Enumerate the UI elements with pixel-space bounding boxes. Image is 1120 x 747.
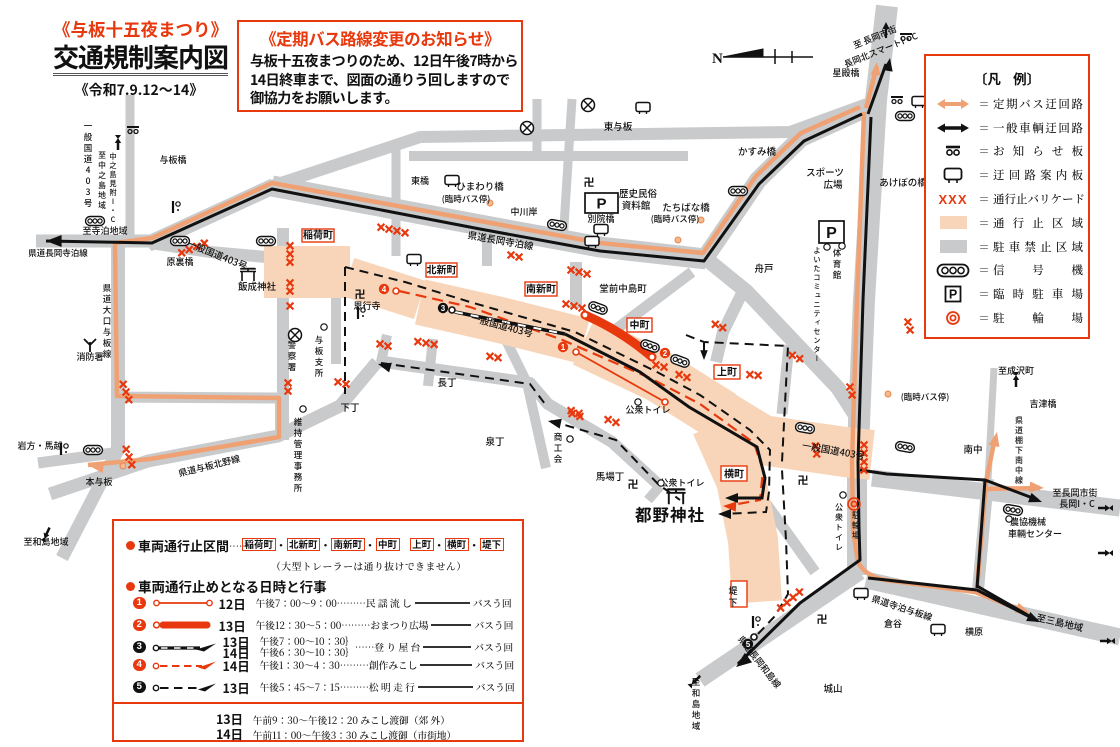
svg-text:(臨時バス停): (臨時バス停) <box>901 391 950 403</box>
svg-text:P: P <box>596 195 606 212</box>
svg-text:維持管理事務所: 維持管理事務所 <box>292 416 304 493</box>
svg-text:与板支所: 与板支所 <box>313 334 325 378</box>
svg-text:下丁: 下丁 <box>340 400 359 414</box>
svg-text:至寺泊地域: 至寺泊地域 <box>82 224 127 237</box>
svg-text:たちばな橋: たちばな橋 <box>662 200 710 214</box>
svg-text:舟戸: 舟戸 <box>754 261 773 275</box>
svg-text:本与板: 本与板 <box>85 475 112 488</box>
svg-text:南新町: 南新町 <box>526 281 556 296</box>
svg-text:中川岸: 中川岸 <box>510 205 537 218</box>
svg-text:4: 4 <box>382 285 387 294</box>
svg-text:警察署: 警察署 <box>286 339 298 372</box>
svg-text:長岡I・C: 長岡I・C <box>1059 497 1095 510</box>
svg-text:至成沢町: 至成沢町 <box>998 364 1034 377</box>
svg-text:横原: 横原 <box>965 625 983 638</box>
svg-text:2: 2 <box>663 349 668 358</box>
svg-text:体育館: 体育館 <box>831 247 843 280</box>
svg-text:泉丁: 泉丁 <box>485 434 504 448</box>
svg-text:P: P <box>826 225 837 242</box>
svg-text:あけぼの橋: あけぼの橋 <box>879 175 927 189</box>
svg-text:至和島地域: 至和島地域 <box>23 535 68 548</box>
svg-text:商工会: 商工会 <box>552 431 564 464</box>
svg-text:5: 5 <box>746 640 751 649</box>
svg-text:中町: 中町 <box>630 317 650 332</box>
svg-text:都野神社: 都野神社 <box>635 502 705 526</box>
svg-text:中之島見附I・C: 中之島見附I・C <box>108 152 118 224</box>
svg-text:(臨時バス停): (臨時バス停) <box>651 213 700 225</box>
svg-text:公衆トイレ: 公衆トイレ <box>625 403 670 416</box>
svg-text:横町: 横町 <box>724 466 744 481</box>
svg-text:(臨時バス停): (臨時バス停) <box>442 193 491 205</box>
svg-text:県道棚下南中線: 県道棚下南中線 <box>1014 415 1025 485</box>
svg-text:よいたコミュニティセンター: よいたコミュニティセンター <box>812 246 822 363</box>
svg-text:1: 1 <box>561 343 566 352</box>
svg-text:N: N <box>712 51 723 67</box>
svg-text:馬場丁: 馬場丁 <box>596 469 625 483</box>
svg-text:公衆トイレ: 公衆トイレ <box>659 476 704 489</box>
svg-text:ひまわり橋: ひまわり橋 <box>456 179 504 193</box>
svg-text:卍: 卍 <box>584 174 595 190</box>
svg-text:車輛センター: 車輛センター <box>1008 527 1062 540</box>
svg-text:飯成神社: 飯成神社 <box>238 279 277 293</box>
svg-text:公衆トイレ: 公衆トイレ <box>834 502 845 552</box>
svg-text:原裏橋: 原裏橋 <box>166 255 193 268</box>
svg-text:稲荷町: 稲荷町 <box>303 227 333 242</box>
svg-text:東橋: 東橋 <box>411 174 429 187</box>
svg-text:至和島地域: 至和島地域 <box>690 676 702 731</box>
svg-text:吉津橋: 吉津橋 <box>1029 397 1056 410</box>
svg-text:岩方・馬越: 岩方・馬越 <box>17 439 62 452</box>
svg-text:卍: 卍 <box>817 611 828 627</box>
svg-text:長丁: 長丁 <box>437 375 456 389</box>
svg-text:県道大口与板線: 県道大口与板線 <box>101 282 113 359</box>
svg-text:堂前中島町: 堂前中島町 <box>599 281 647 295</box>
svg-text:至中之島地域: 至中之島地域 <box>97 150 108 210</box>
svg-text:別院橋: 別院橋 <box>587 212 614 225</box>
svg-text:3: 3 <box>441 304 446 313</box>
svg-text:P: P <box>949 288 957 302</box>
svg-text:卍: 卍 <box>798 472 809 488</box>
svg-text:駐輪場: 駐輪場 <box>851 510 862 540</box>
svg-text:上町: 上町 <box>717 364 737 379</box>
svg-text:南中: 南中 <box>963 442 982 456</box>
svg-text:消防署: 消防署 <box>76 350 103 363</box>
svg-text:東与板: 東与板 <box>604 119 633 133</box>
svg-text:北新町: 北新町 <box>427 262 457 277</box>
svg-text:資料館: 資料館 <box>622 198 651 212</box>
svg-text:県道長岡寺泊線: 県道長岡寺泊線 <box>28 247 88 259</box>
svg-text:卍: 卍 <box>628 476 639 492</box>
svg-text:与板橋: 与板橋 <box>159 153 186 166</box>
svg-text:卍: 卍 <box>355 286 366 302</box>
svg-text:倉谷: 倉谷 <box>884 617 902 630</box>
svg-text:一般国道403号: 一般国道403号 <box>82 120 94 208</box>
svg-text:城山: 城山 <box>823 681 842 695</box>
svg-text:かすみ橋: かすみ橋 <box>738 144 777 158</box>
svg-text:広場: 広場 <box>823 177 843 191</box>
svg-text:堤下: 堤下 <box>727 584 740 608</box>
